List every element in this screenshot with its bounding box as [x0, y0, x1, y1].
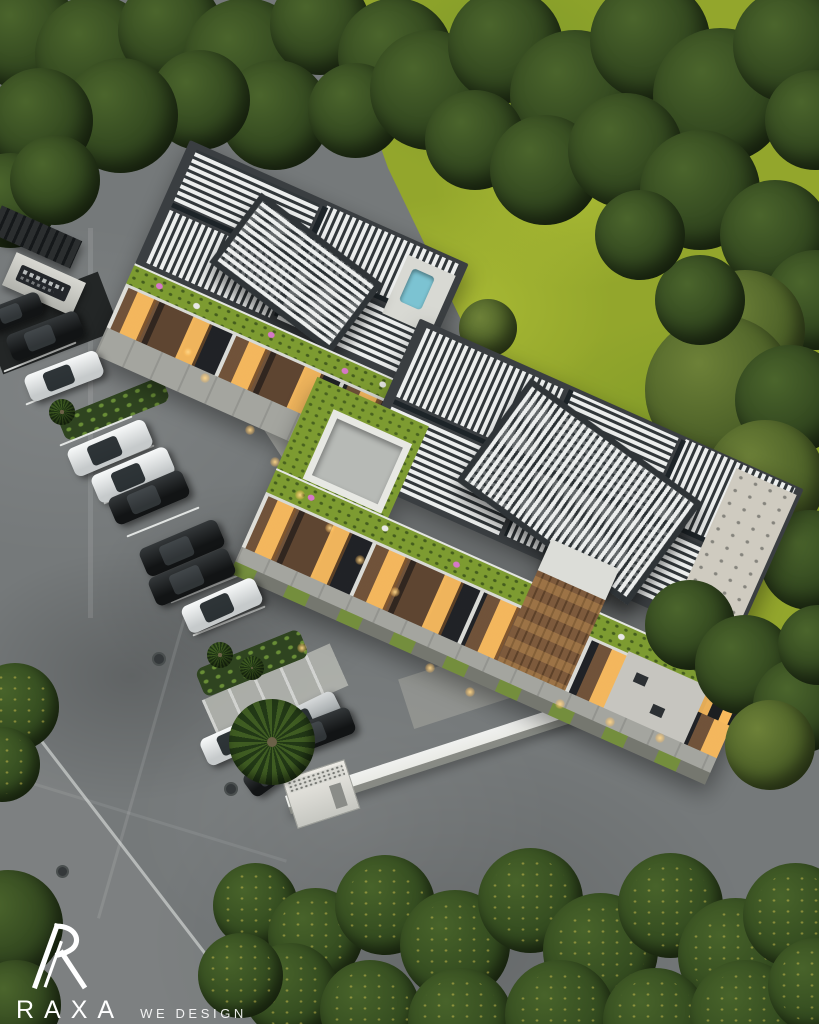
flower-dot: [452, 560, 461, 568]
flower-dot: [267, 331, 276, 339]
raxa-logo-icon: [30, 920, 94, 992]
architectural-aerial-rendering: RAXA WE DESIGN HAPPINESS: [0, 0, 819, 1024]
flower-dot: [307, 494, 316, 502]
brand-tagline: WE DESIGN HAPPINESS: [140, 1006, 356, 1024]
flower-dot: [192, 302, 201, 310]
flower-dot: [381, 524, 390, 532]
brand-name: RAXA: [16, 996, 124, 1024]
flower-dot: [155, 282, 164, 290]
flower-dot: [273, 470, 282, 478]
flower-dot: [617, 633, 626, 641]
watermark: RAXA WE DESIGN HAPPINESS: [16, 920, 356, 1024]
